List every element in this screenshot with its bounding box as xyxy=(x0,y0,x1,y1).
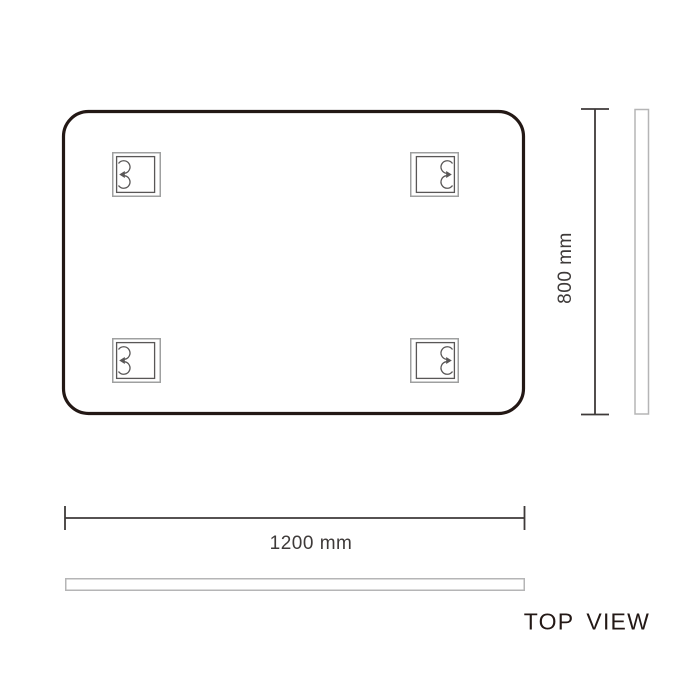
width-dimension-line xyxy=(65,506,525,530)
width-dimension-label: 1200 mm xyxy=(270,533,353,555)
top-view-drawing xyxy=(0,0,700,700)
keyhole-mount-bracket-icon-top-right xyxy=(411,153,459,197)
technical-drawing-canvas: 800 mm 1200 mm TOP VIEW xyxy=(0,0,700,700)
keyhole-mount-bracket-icon-bottom-right xyxy=(411,339,459,383)
keyhole-mount-bracket-icon-bottom-left xyxy=(113,339,161,383)
height-dimension-label: 800 mm xyxy=(555,232,577,304)
bottom-profile-bar xyxy=(66,579,525,591)
keyhole-mount-bracket-icon-top-left xyxy=(113,153,161,197)
height-dimension-line xyxy=(581,109,609,415)
side-profile-bar xyxy=(635,110,649,415)
view-title: TOP VIEW xyxy=(524,609,650,636)
